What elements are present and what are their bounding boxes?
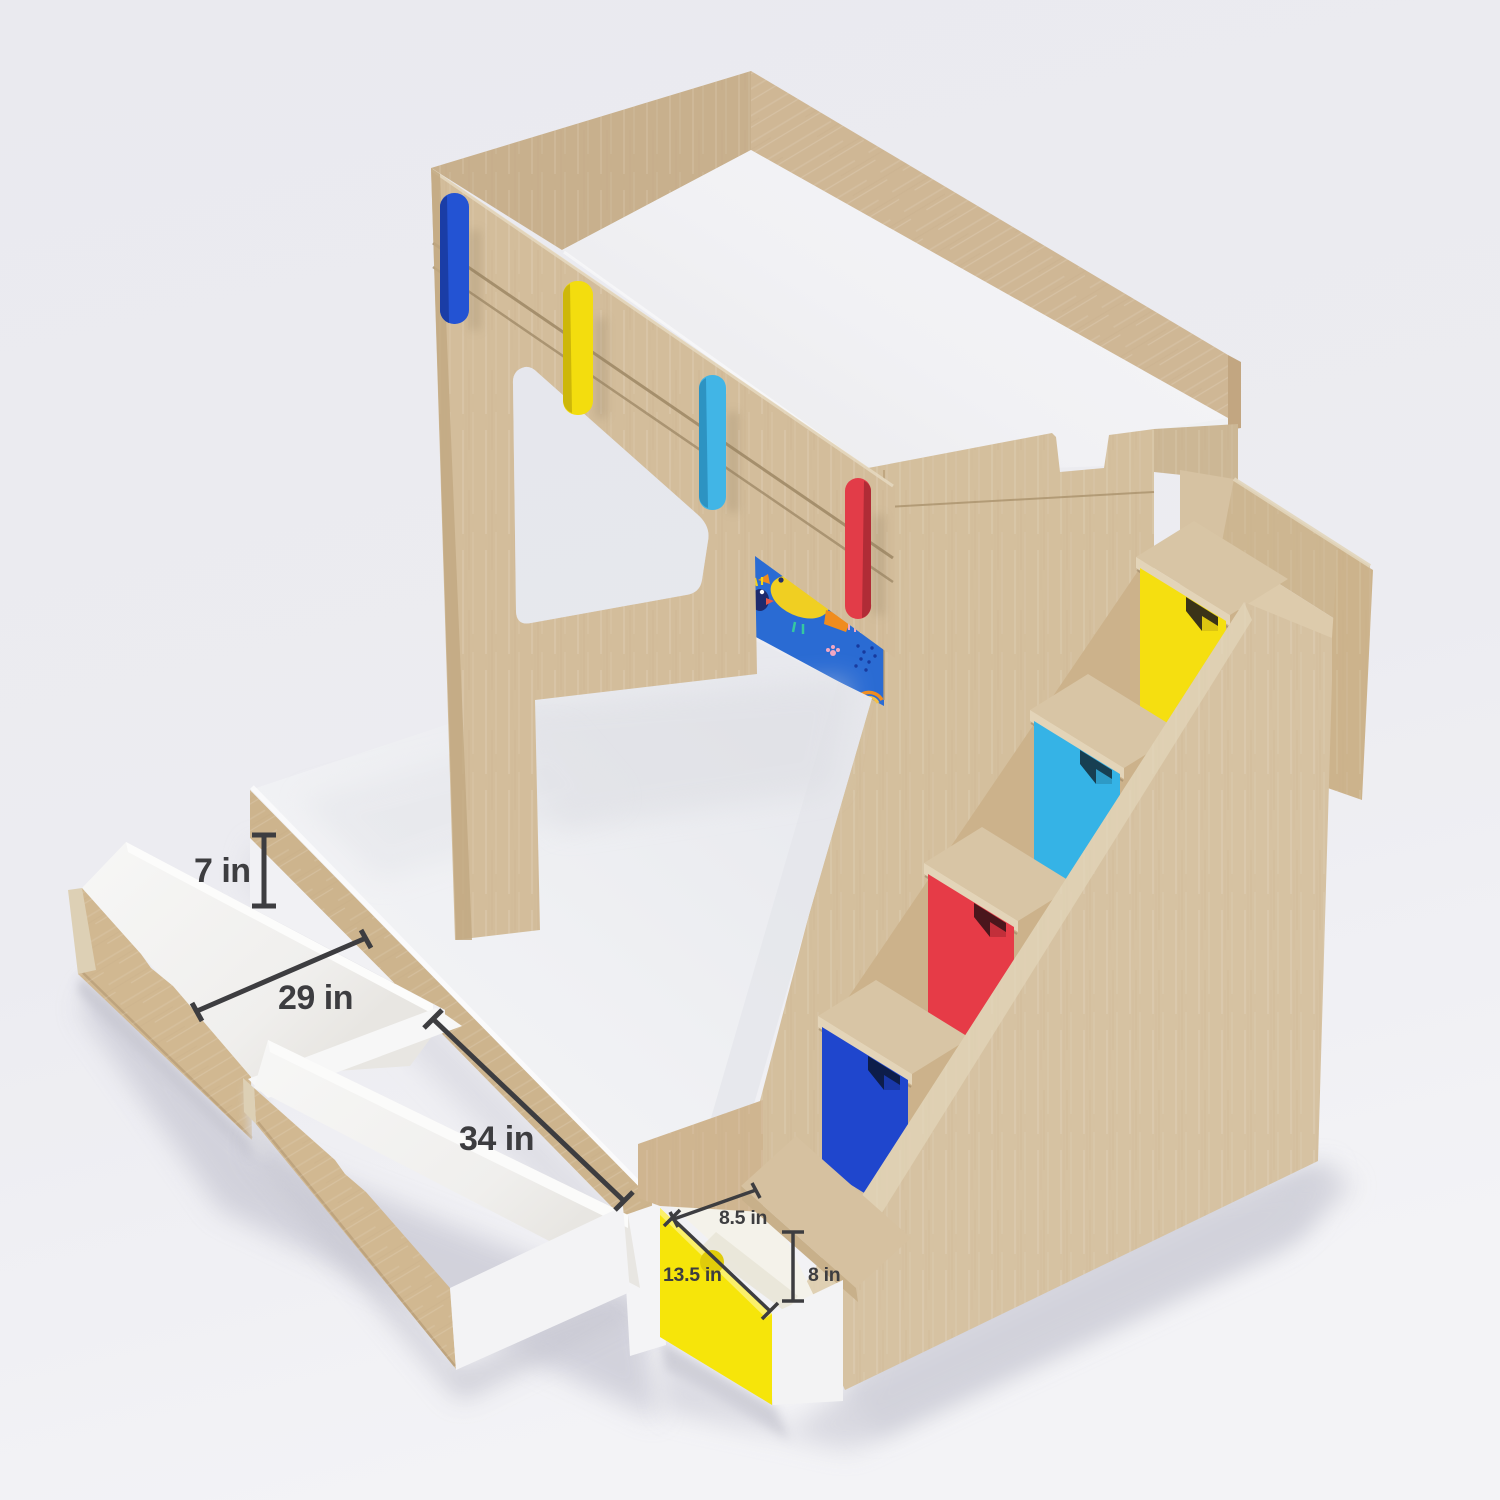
svg-text:29 in: 29 in [278, 979, 353, 1017]
svg-text:8.5 in: 8.5 in [719, 1207, 767, 1229]
svg-text:13.5 in: 13.5 in [663, 1264, 722, 1286]
svg-text:7 in: 7 in [194, 852, 251, 890]
svg-text:8 in: 8 in [808, 1264, 840, 1286]
svg-text:34 in: 34 in [459, 1120, 534, 1158]
